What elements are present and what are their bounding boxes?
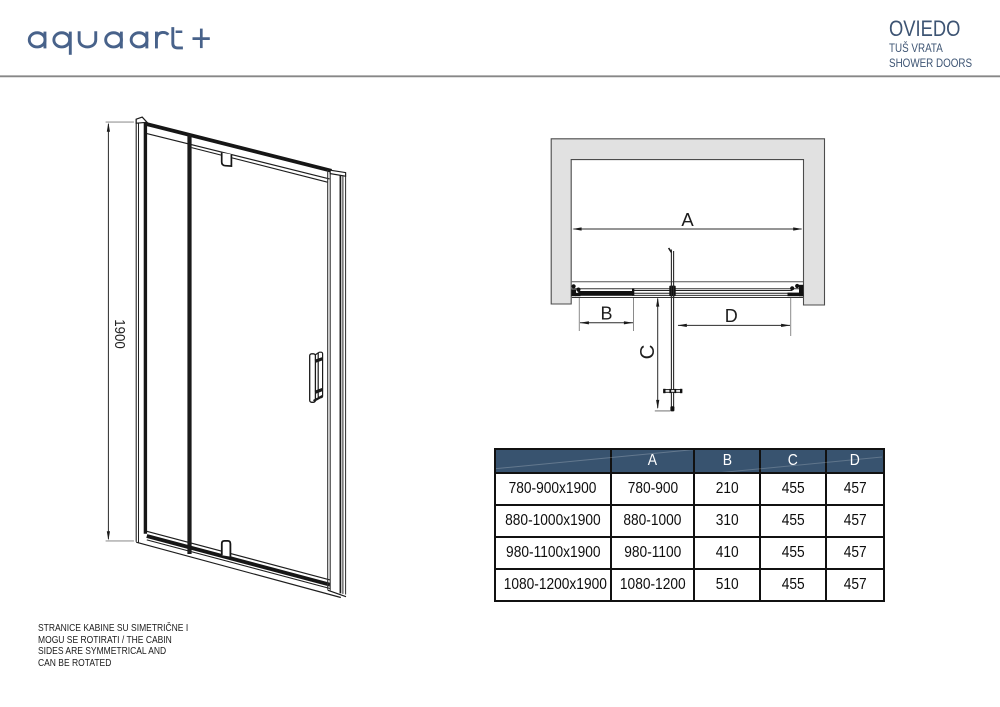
svg-text:A: A: [681, 209, 694, 230]
svg-text:D: D: [725, 306, 738, 326]
svg-text:B: B: [600, 303, 612, 323]
svg-text:C: C: [636, 344, 659, 359]
svg-text:1900: 1900: [111, 319, 128, 349]
